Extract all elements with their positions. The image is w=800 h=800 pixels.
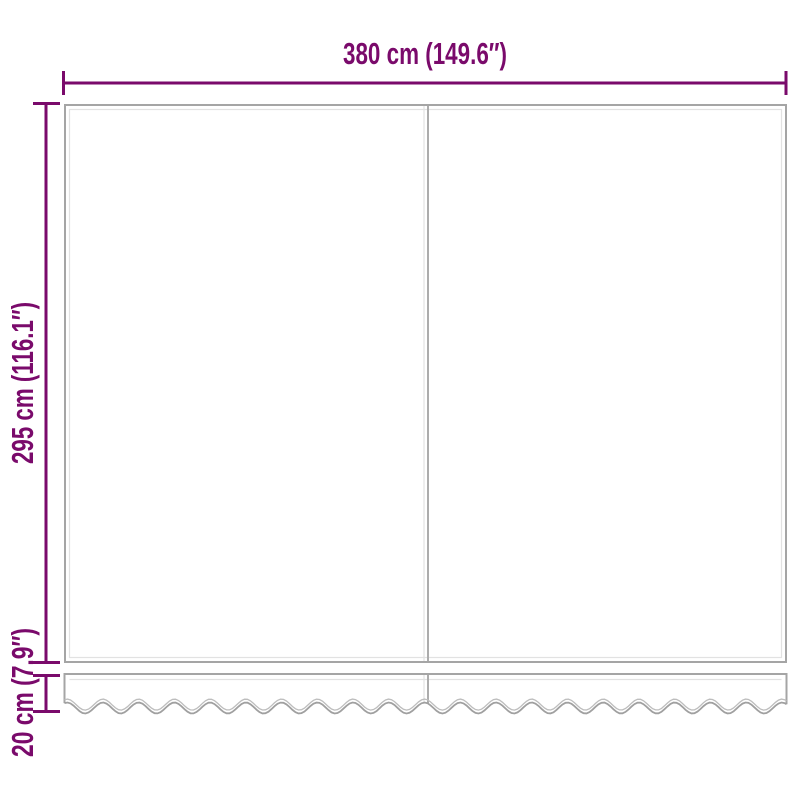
- svg-text:20 cm (7.9″): 20 cm (7.9″): [5, 628, 40, 757]
- svg-text:295 cm (116.1″): 295 cm (116.1″): [5, 302, 40, 464]
- svg-text:380 cm (149.6″): 380 cm (149.6″): [343, 36, 507, 71]
